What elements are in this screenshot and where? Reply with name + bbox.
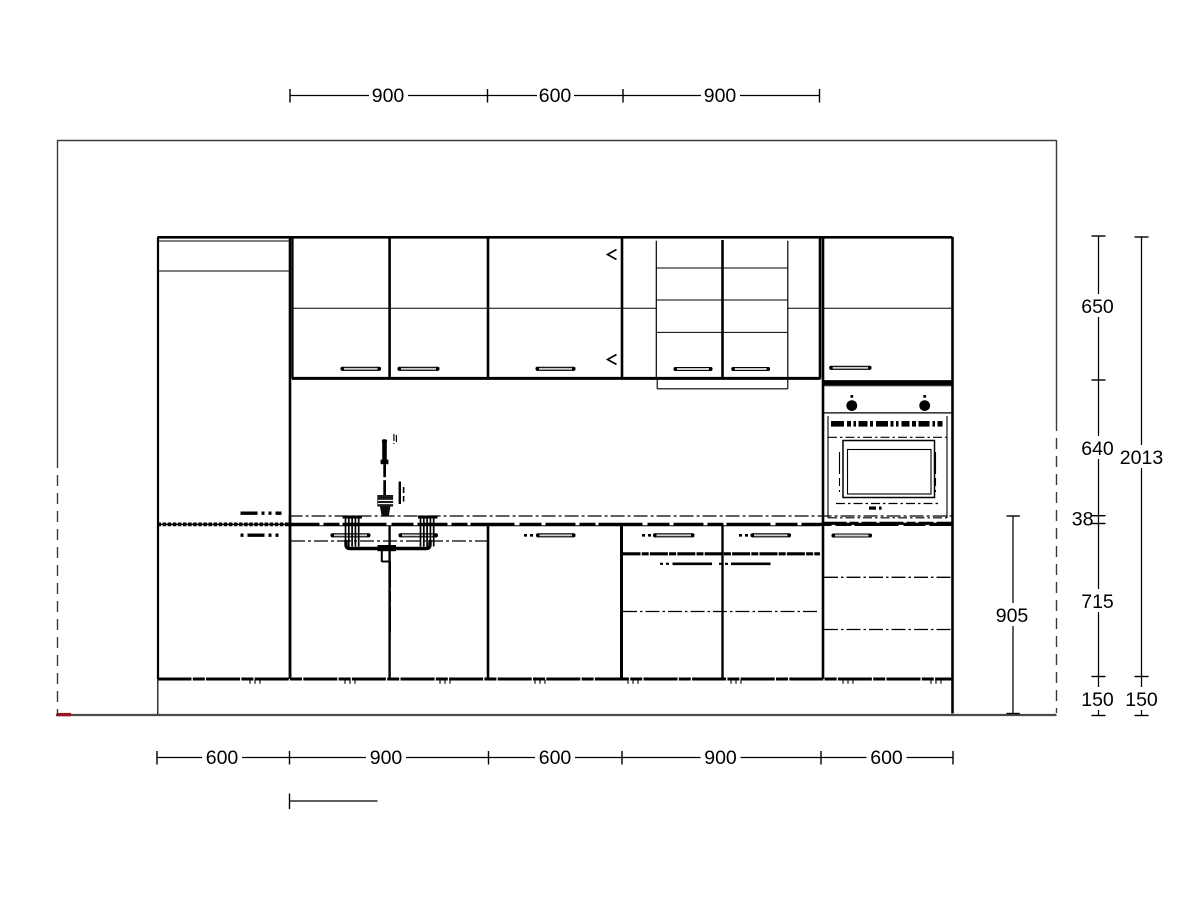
svg-text:600: 600 xyxy=(870,747,903,769)
svg-text:900: 900 xyxy=(370,747,403,769)
svg-text:150: 150 xyxy=(1081,689,1114,711)
svg-text:715: 715 xyxy=(1081,591,1114,613)
svg-text:900: 900 xyxy=(372,85,405,107)
svg-text:900: 900 xyxy=(704,747,737,769)
svg-text:2013: 2013 xyxy=(1120,447,1163,469)
svg-text:600: 600 xyxy=(539,85,572,107)
svg-text:640: 640 xyxy=(1081,438,1114,460)
svg-text:600: 600 xyxy=(206,747,239,769)
svg-text:150: 150 xyxy=(1125,689,1158,711)
svg-text:650: 650 xyxy=(1081,296,1114,318)
svg-text:900: 900 xyxy=(704,85,737,107)
svg-text:38: 38 xyxy=(1072,509,1094,531)
svg-text:905: 905 xyxy=(996,605,1029,627)
svg-text:600: 600 xyxy=(539,747,572,769)
